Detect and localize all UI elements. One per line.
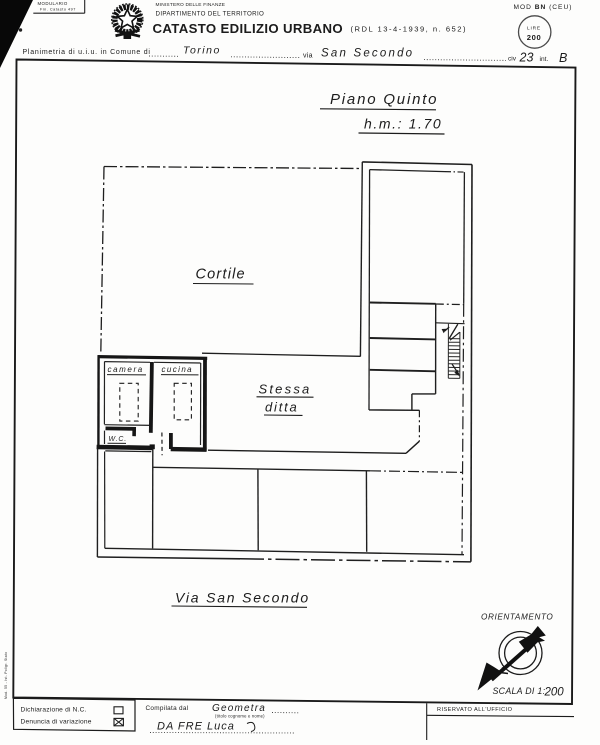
svg-text:200: 200 bbox=[544, 687, 565, 699]
svg-text:B: B bbox=[559, 51, 567, 65]
svg-text:RISERVATO ALL'UFFICIO: RISERVATO ALL'UFFICIO bbox=[437, 707, 513, 713]
svg-text:DIPARTIMENTO DEL TERRITORIO: DIPARTIMENTO DEL TERRITORIO bbox=[156, 11, 265, 18]
svg-text:Torino: Torino bbox=[183, 45, 221, 57]
svg-text:Geometra: Geometra bbox=[212, 703, 266, 714]
svg-text:h.m.: 1.70: h.m.: 1.70 bbox=[364, 116, 442, 132]
svg-text:LIRE: LIRE bbox=[527, 26, 541, 32]
svg-text:civ: civ bbox=[508, 56, 517, 63]
svg-text:Piano Quinto: Piano Quinto bbox=[330, 91, 438, 108]
svg-text:MOD BN (CEU): MOD BN (CEU) bbox=[514, 4, 573, 11]
svg-text:Cortile: Cortile bbox=[196, 267, 246, 283]
svg-text:cucina: cucina bbox=[162, 365, 194, 374]
svg-text:200: 200 bbox=[527, 33, 541, 42]
svg-text:Planimetria di u.i.u. in Comun: Planimetria di u.i.u. in Comune di bbox=[23, 49, 151, 56]
svg-text:SCALA DI 1:: SCALA DI 1: bbox=[493, 686, 546, 696]
svg-text:CATASTO EDILIZIO URBANO: CATASTO EDILIZIO URBANO bbox=[153, 21, 343, 36]
svg-text:Mod. 55 - Ist. Poligr. Stato: Mod. 55 - Ist. Poligr. Stato bbox=[4, 652, 8, 699]
svg-text:23: 23 bbox=[519, 51, 534, 65]
svg-text:camera: camera bbox=[108, 365, 144, 374]
svg-text:W.C.: W.C. bbox=[109, 436, 128, 443]
svg-text:int.: int. bbox=[540, 56, 549, 63]
svg-text:Fin. Catasto 497: Fin. Catasto 497 bbox=[40, 7, 76, 11]
svg-text:MINISTERO DELLE FINANZE: MINISTERO DELLE FINANZE bbox=[156, 2, 226, 8]
svg-text:(RDL 13-4-1939, n. 652): (RDL 13-4-1939, n. 652) bbox=[351, 25, 468, 34]
svg-text:San Secondo: San Secondo bbox=[321, 48, 414, 60]
svg-text:(titolo cognome e nome): (titolo cognome e nome) bbox=[215, 714, 265, 719]
svg-text:Compilata dal: Compilata dal bbox=[146, 705, 189, 712]
svg-text:DA FRE Luca: DA FRE Luca bbox=[157, 721, 235, 733]
svg-text:ditta: ditta bbox=[265, 400, 299, 415]
svg-text:via: via bbox=[303, 53, 313, 60]
svg-text:ORIENTAMENTO: ORIENTAMENTO bbox=[481, 613, 553, 622]
svg-text:Via San Secondo: Via San Secondo bbox=[175, 590, 310, 606]
svg-text:MODULARIO: MODULARIO bbox=[38, 1, 68, 6]
svg-text:Stessa: Stessa bbox=[259, 382, 312, 397]
svg-text:Dichiarazione di N.C.: Dichiarazione di N.C. bbox=[21, 707, 87, 714]
svg-text:Denuncia di variazione: Denuncia di variazione bbox=[21, 719, 92, 726]
